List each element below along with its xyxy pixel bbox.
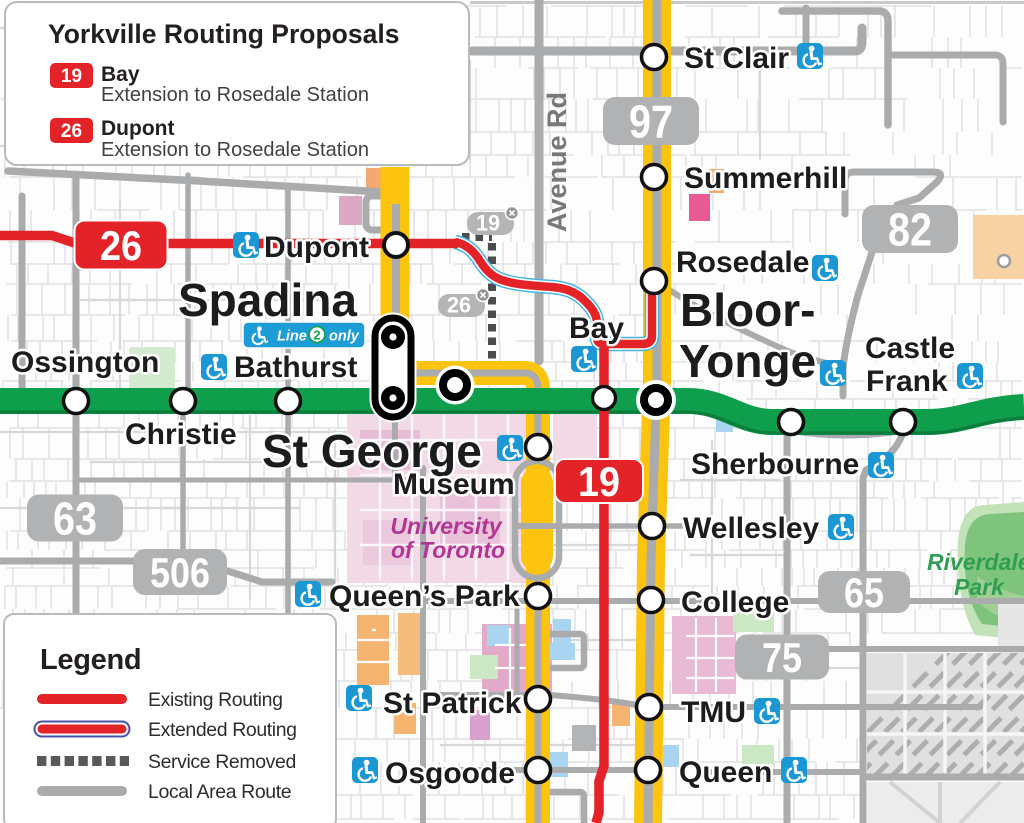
svg-text:Extension to Rosedale Station: Extension to Rosedale Station — [101, 139, 369, 161]
svg-text:Extended Routing: Extended Routing — [148, 719, 297, 741]
svg-text:19: 19 — [476, 211, 500, 236]
svg-text:Bay: Bay — [101, 63, 140, 86]
svg-text:26: 26 — [100, 222, 142, 269]
svg-text:75: 75 — [762, 634, 802, 681]
svg-text:Yonge: Yonge — [679, 335, 816, 387]
svg-text:Castle: Castle — [865, 332, 955, 365]
svg-text:Bloor-: Bloor- — [680, 284, 815, 336]
svg-text:Local Area Route: Local Area Route — [148, 781, 291, 803]
svg-text:Yorkville Routing Proposals: Yorkville Routing Proposals — [48, 19, 399, 49]
svg-text:Bay: Bay — [569, 312, 624, 345]
svg-text:97: 97 — [629, 96, 673, 148]
svg-text:65: 65 — [844, 569, 884, 616]
svg-text:Legend: Legend — [40, 644, 141, 676]
svg-text:Rosedale: Rosedale — [676, 246, 809, 279]
svg-text:Ossington: Ossington — [11, 346, 159, 379]
svg-text:Avenue Rd: Avenue Rd — [542, 92, 572, 232]
svg-text:Summerhill: Summerhill — [684, 162, 847, 195]
svg-text:St Clair: St Clair — [684, 42, 789, 75]
svg-text:of Toronto: of Toronto — [391, 537, 505, 563]
svg-text:Dupont: Dupont — [101, 117, 174, 140]
svg-text:26: 26 — [61, 121, 82, 142]
svg-text:St Patrick: St Patrick — [383, 687, 522, 720]
svg-text:Wellesley: Wellesley — [683, 512, 820, 545]
svg-text:506: 506 — [150, 549, 210, 596]
svg-text:Bathurst: Bathurst — [234, 351, 357, 384]
svg-text:Osgoode: Osgoode — [385, 757, 515, 790]
svg-text:Dupont: Dupont — [264, 231, 369, 264]
svg-text:63: 63 — [53, 493, 97, 545]
svg-text:Museum: Museum — [393, 468, 515, 501]
svg-text:Riverdale: Riverdale — [927, 549, 1024, 575]
svg-text:Line: Line — [277, 329, 307, 345]
svg-text:Sherbourne: Sherbourne — [691, 448, 859, 481]
svg-text:26: 26 — [447, 293, 471, 318]
svg-text:Queen: Queen — [679, 756, 772, 789]
svg-text:19: 19 — [578, 458, 620, 505]
svg-text:Spadina: Spadina — [178, 274, 357, 326]
svg-text:TMU: TMU — [681, 696, 746, 729]
svg-text:Extension to Rosedale Station: Extension to Rosedale Station — [101, 84, 369, 106]
svg-text:82: 82 — [888, 204, 932, 256]
svg-text:College: College — [681, 586, 789, 619]
svg-text:University: University — [390, 513, 502, 539]
svg-text:Existing Routing: Existing Routing — [148, 689, 283, 711]
svg-text:19: 19 — [61, 66, 82, 87]
svg-text:Frank: Frank — [866, 365, 948, 398]
svg-text:Service Removed: Service Removed — [148, 751, 296, 773]
svg-text:Christie: Christie — [125, 418, 237, 451]
svg-text:only: only — [329, 329, 360, 345]
svg-text:Park: Park — [954, 574, 1005, 600]
svg-text:2: 2 — [313, 328, 320, 343]
svg-text:Queen’s Park: Queen’s Park — [329, 580, 520, 613]
